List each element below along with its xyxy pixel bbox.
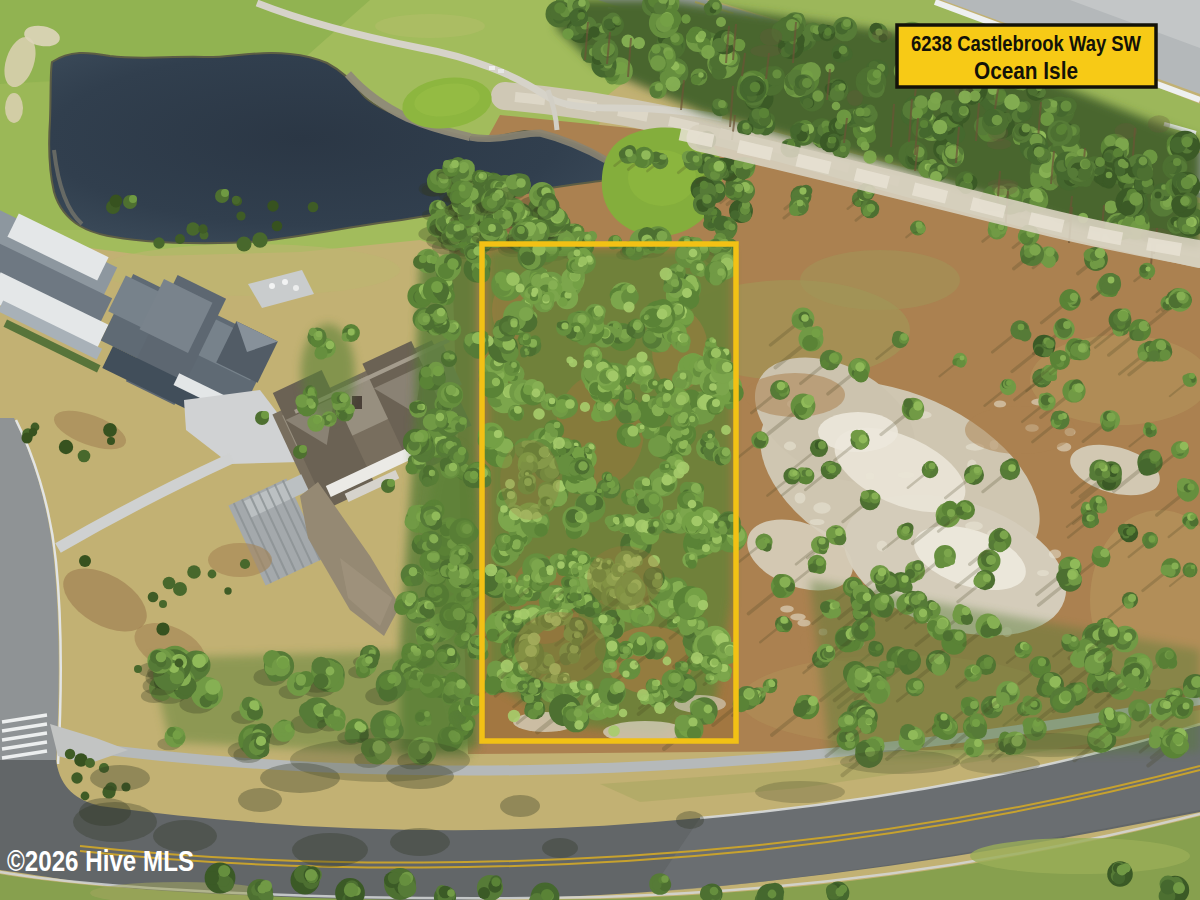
- svg-text:Ocean Isle: Ocean Isle: [974, 58, 1078, 84]
- svg-text:©2026 Hive MLS: ©2026 Hive MLS: [7, 845, 194, 877]
- svg-text:6238 Castlebrook Way SW: 6238 Castlebrook Way SW: [911, 31, 1141, 56]
